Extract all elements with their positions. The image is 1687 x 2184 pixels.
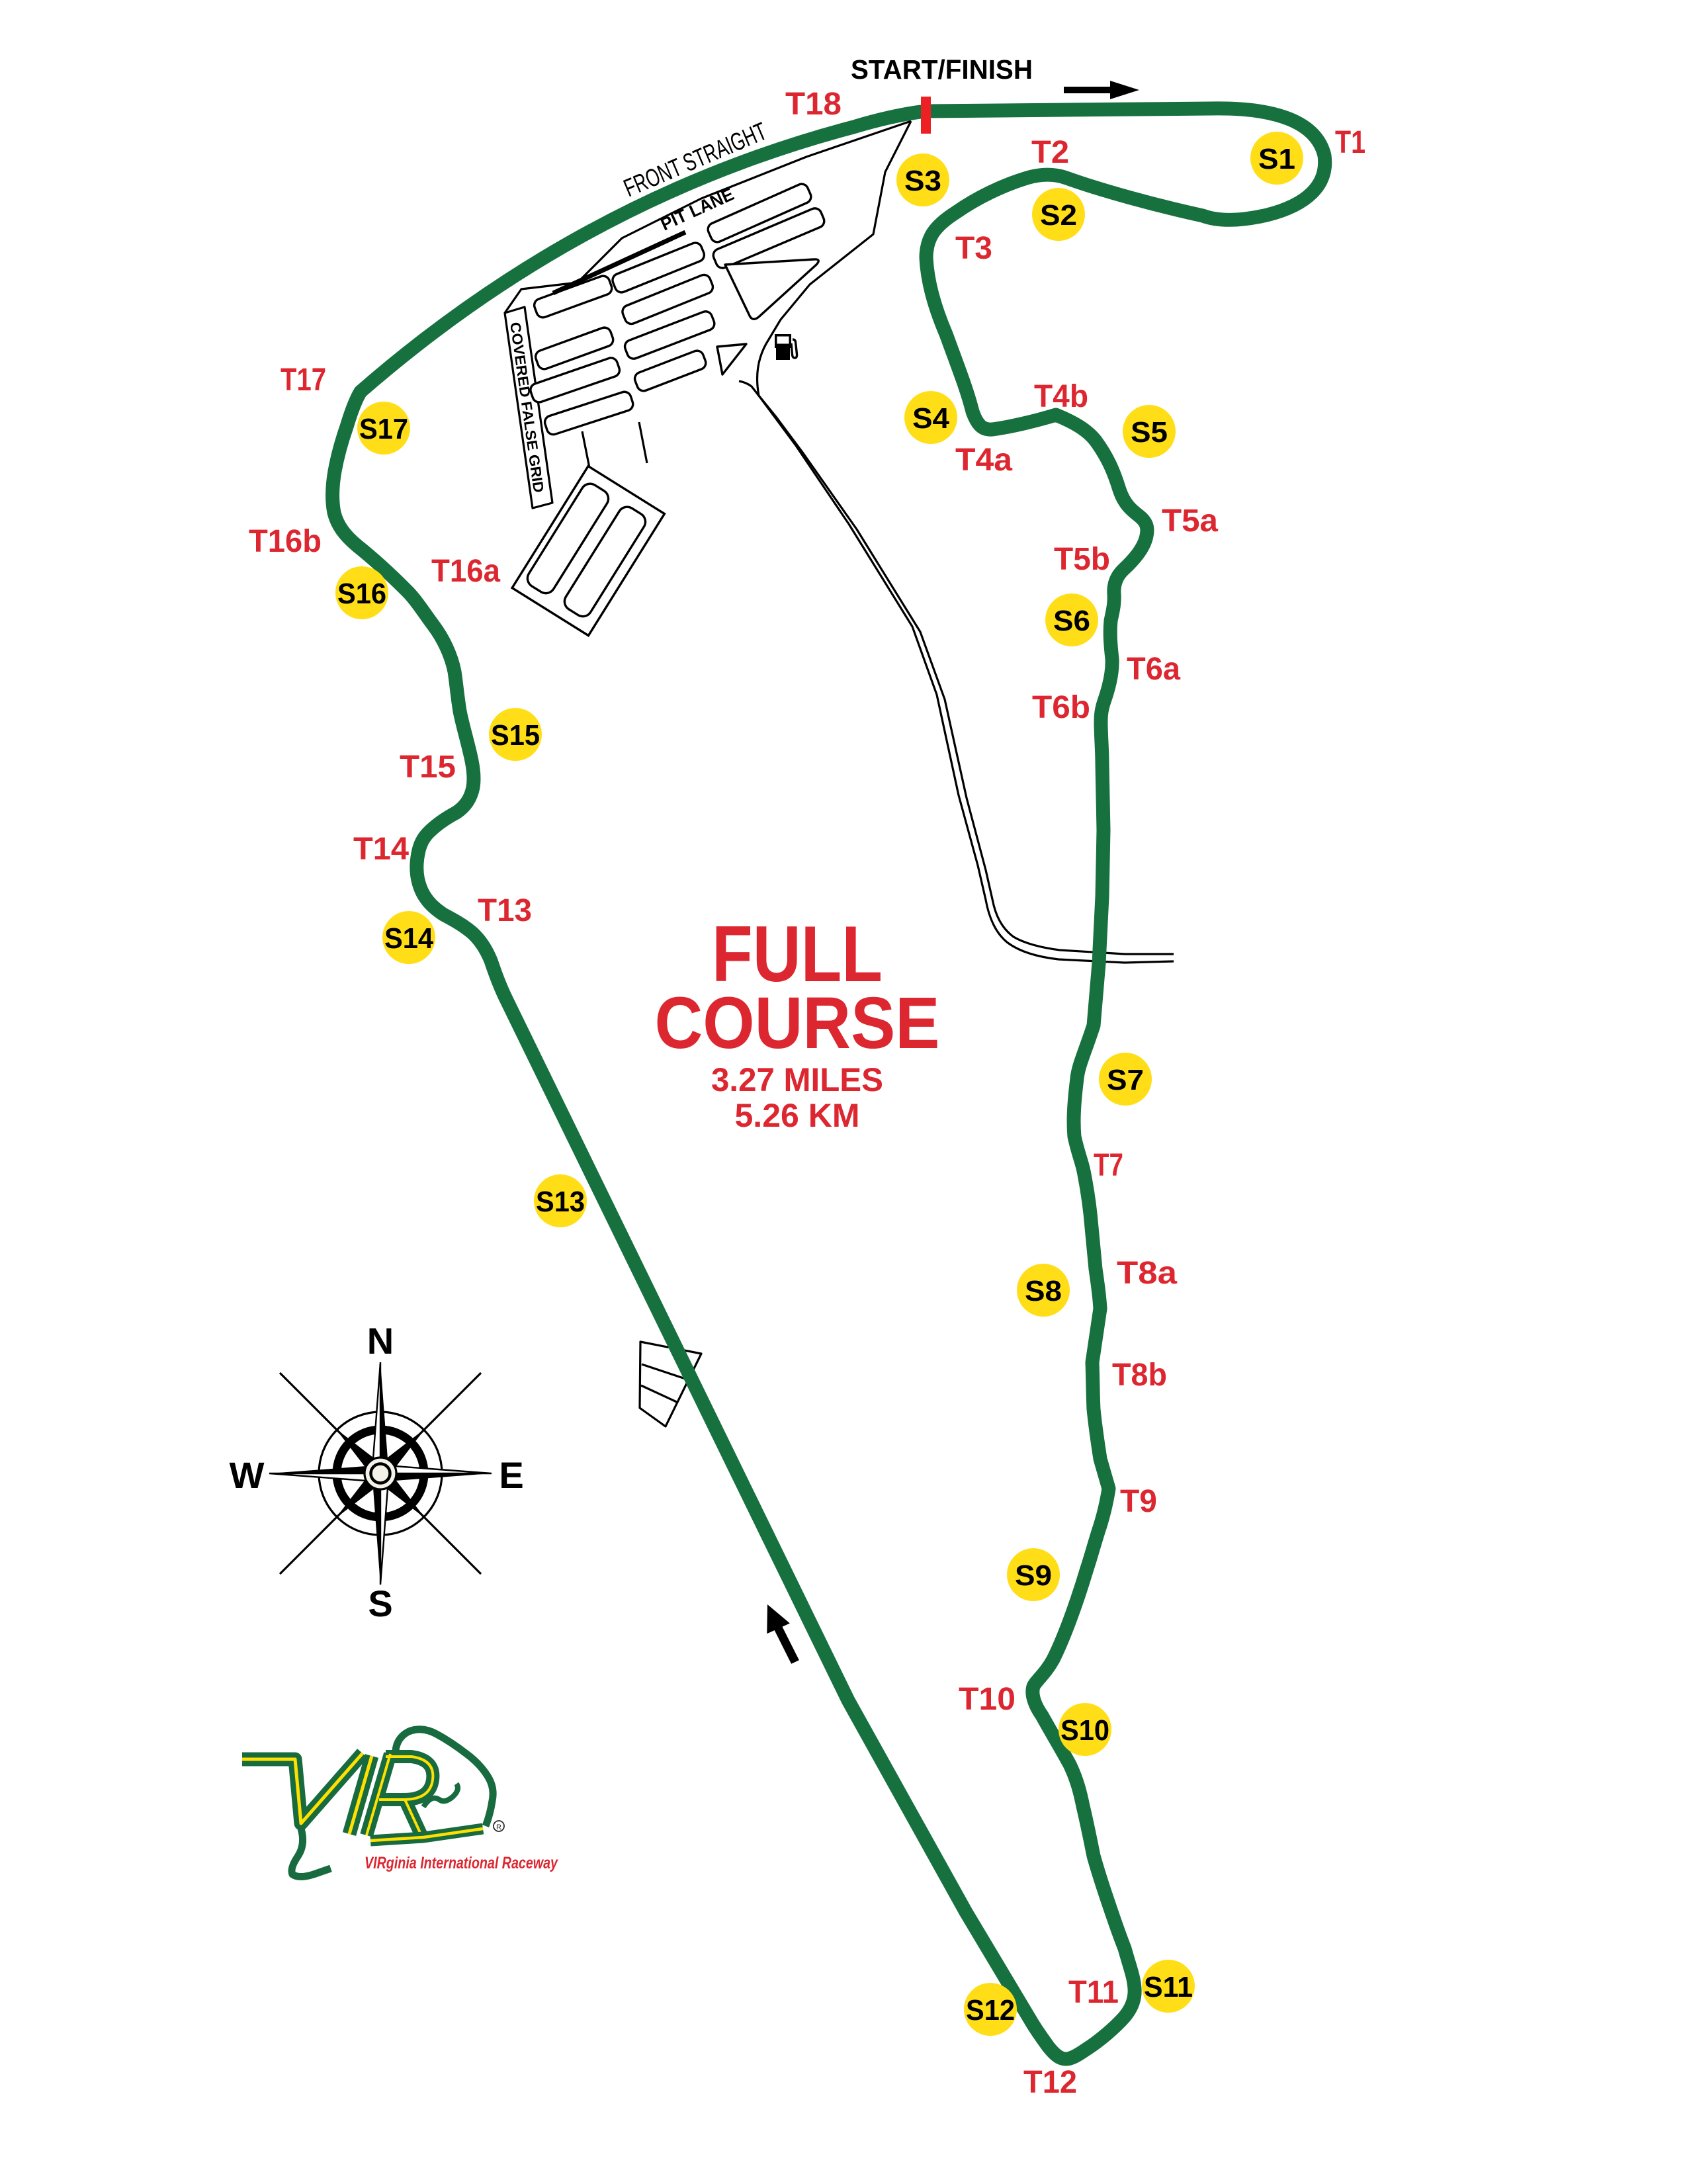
svg-text:T14: T14 <box>353 832 409 867</box>
svg-text:S4: S4 <box>912 402 950 435</box>
svg-text:S5: S5 <box>1131 416 1168 449</box>
svg-text:S17: S17 <box>359 413 408 445</box>
svg-text:S: S <box>368 1583 392 1624</box>
svg-text:T8b: T8b <box>1112 1358 1167 1393</box>
svg-text:T2: T2 <box>1031 135 1069 170</box>
svg-text:T5b: T5b <box>1054 542 1110 577</box>
svg-text:T16a: T16a <box>431 554 500 589</box>
svg-text:W: W <box>230 1454 265 1496</box>
svg-text:T16b: T16b <box>249 524 322 559</box>
svg-text:S14: S14 <box>384 922 433 955</box>
svg-text:S2: S2 <box>1040 199 1077 232</box>
svg-text:S3: S3 <box>904 165 941 197</box>
svg-text:T8a: T8a <box>1117 1256 1177 1291</box>
svg-text:S9: S9 <box>1015 1559 1052 1592</box>
svg-text:S8: S8 <box>1025 1275 1062 1307</box>
svg-text:S16: S16 <box>337 578 386 610</box>
svg-text:T6a: T6a <box>1127 652 1180 687</box>
svg-text:T4a: T4a <box>955 443 1012 478</box>
svg-text:S1: S1 <box>1258 143 1295 175</box>
svg-text:S11: S11 <box>1144 1971 1193 2003</box>
svg-text:T13: T13 <box>478 893 532 928</box>
svg-text:T18: T18 <box>785 87 842 122</box>
svg-text:T9: T9 <box>1120 1484 1157 1519</box>
svg-text:T11: T11 <box>1068 1975 1119 2010</box>
svg-text:S7: S7 <box>1107 1064 1144 1096</box>
svg-text:S6: S6 <box>1053 605 1090 637</box>
svg-text:S12: S12 <box>966 1994 1015 2027</box>
svg-text:T5a: T5a <box>1162 503 1218 539</box>
svg-text:R: R <box>496 1823 501 1831</box>
svg-text:T3: T3 <box>955 231 992 266</box>
svg-text:COURSE: COURSE <box>655 983 940 1064</box>
svg-text:N: N <box>367 1320 394 1362</box>
svg-text:T1: T1 <box>1335 125 1365 160</box>
svg-text:S15: S15 <box>491 719 540 752</box>
svg-text:T12: T12 <box>1023 2065 1077 2100</box>
svg-text:T15: T15 <box>400 750 456 785</box>
svg-text:T10: T10 <box>959 1682 1016 1717</box>
svg-text:E: E <box>499 1454 523 1496</box>
svg-text:T17: T17 <box>281 363 326 398</box>
svg-text:T4b: T4b <box>1034 379 1088 414</box>
svg-text:5.26 KM: 5.26 KM <box>735 1097 860 1134</box>
svg-text:S13: S13 <box>536 1186 585 1218</box>
svg-text:START/FINISH: START/FINISH <box>851 54 1033 85</box>
svg-text:T7: T7 <box>1094 1148 1123 1183</box>
svg-text:VIRginia International Raceway: VIRginia International Raceway <box>365 1854 558 1872</box>
svg-text:S10: S10 <box>1060 1714 1109 1747</box>
svg-text:T6b: T6b <box>1032 690 1090 725</box>
svg-text:3.27 MILES: 3.27 MILES <box>711 1061 883 1098</box>
